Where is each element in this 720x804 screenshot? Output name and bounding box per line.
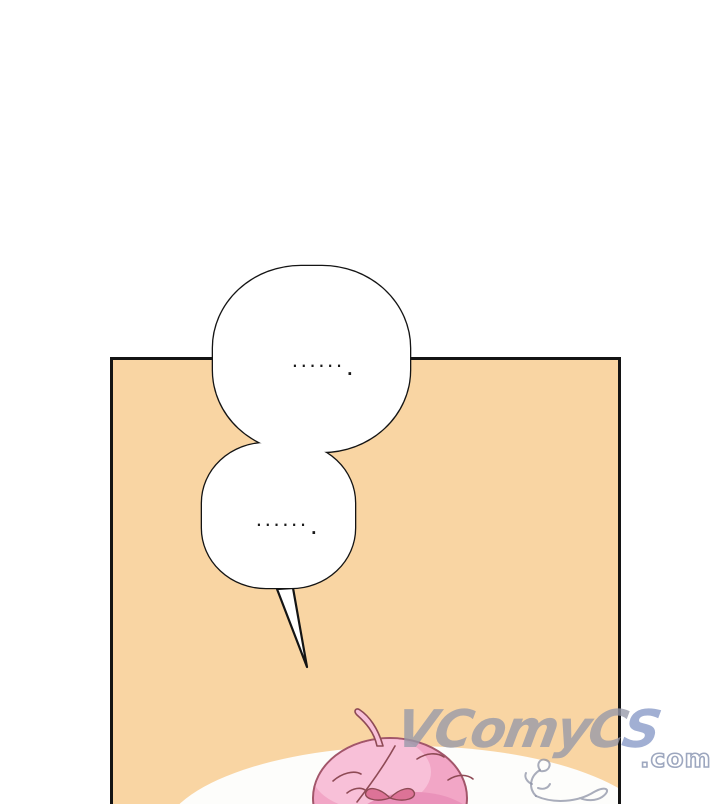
dialogue-2-dots: ...... — [255, 515, 308, 530]
dialogue-bubble-2: ....... — [255, 511, 318, 530]
watermark-suffix: .com — [640, 744, 712, 773]
dialogue-1-dots: ...... — [291, 356, 344, 371]
comic-page: ....... ....... VComyCS .com — [0, 0, 720, 804]
comic-panel — [110, 357, 621, 804]
character-art — [113, 360, 618, 804]
dialogue-2-stop: . — [309, 519, 319, 538]
watermark-accent-letter: S — [618, 700, 664, 760]
dialogue-1-stop: . — [345, 360, 355, 379]
dialogue-bubble-1: ....... — [291, 352, 354, 371]
